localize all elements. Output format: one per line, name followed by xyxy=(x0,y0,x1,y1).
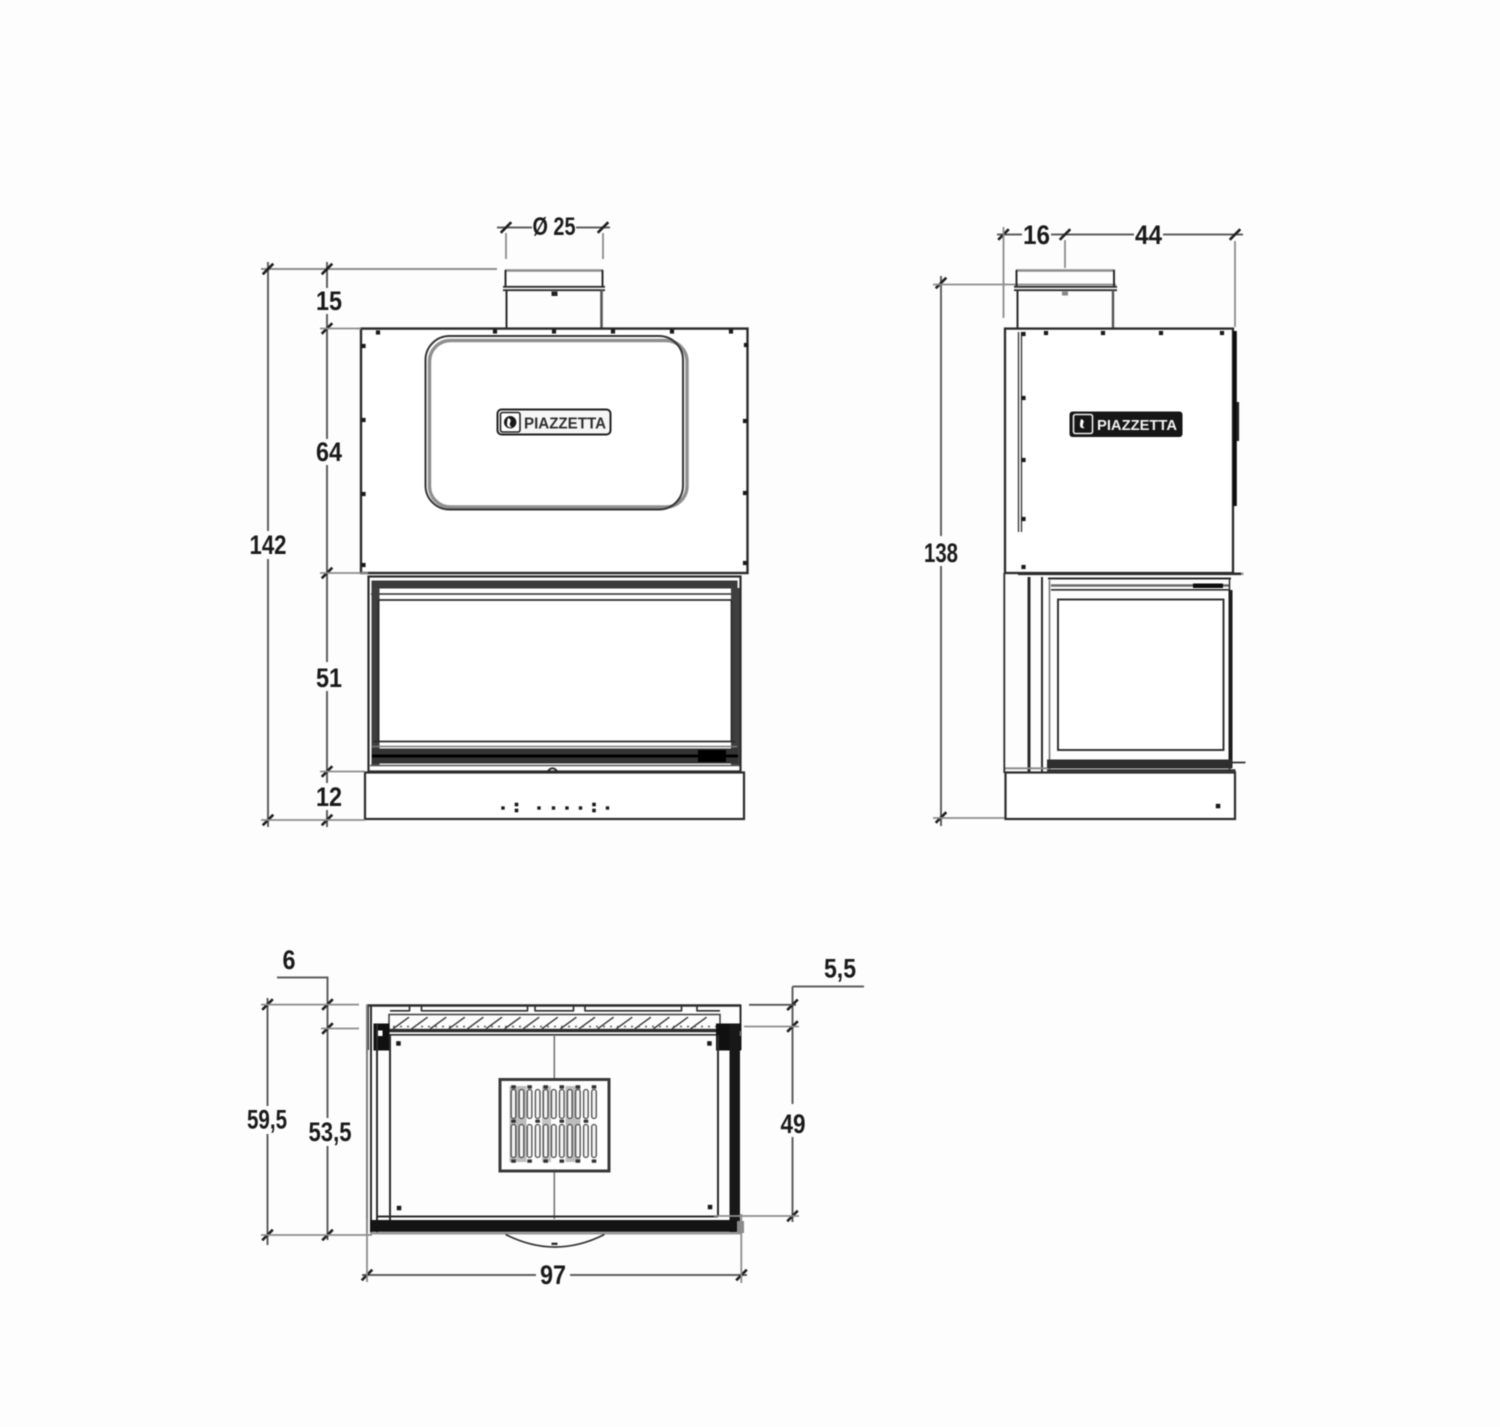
svg-text:44: 44 xyxy=(1135,220,1162,250)
svg-text:15: 15 xyxy=(316,286,342,316)
svg-text:53,5: 53,5 xyxy=(309,1117,352,1147)
svg-text:12: 12 xyxy=(316,782,342,812)
svg-text:Ø 25: Ø 25 xyxy=(533,213,576,241)
svg-text:64: 64 xyxy=(316,437,342,467)
svg-text:PIAZZETTA: PIAZZETTA xyxy=(524,416,606,433)
svg-text:PIAZZETTA: PIAZZETTA xyxy=(1097,418,1178,434)
svg-text:49: 49 xyxy=(781,1109,806,1139)
svg-text:5,5: 5,5 xyxy=(824,954,856,984)
svg-text:138: 138 xyxy=(924,538,958,568)
svg-text:142: 142 xyxy=(250,530,287,560)
svg-text:97: 97 xyxy=(540,1260,566,1290)
svg-text:16: 16 xyxy=(1023,220,1050,250)
svg-text:6: 6 xyxy=(283,945,296,975)
svg-text:51: 51 xyxy=(316,663,342,693)
svg-text:59,5: 59,5 xyxy=(247,1105,287,1135)
